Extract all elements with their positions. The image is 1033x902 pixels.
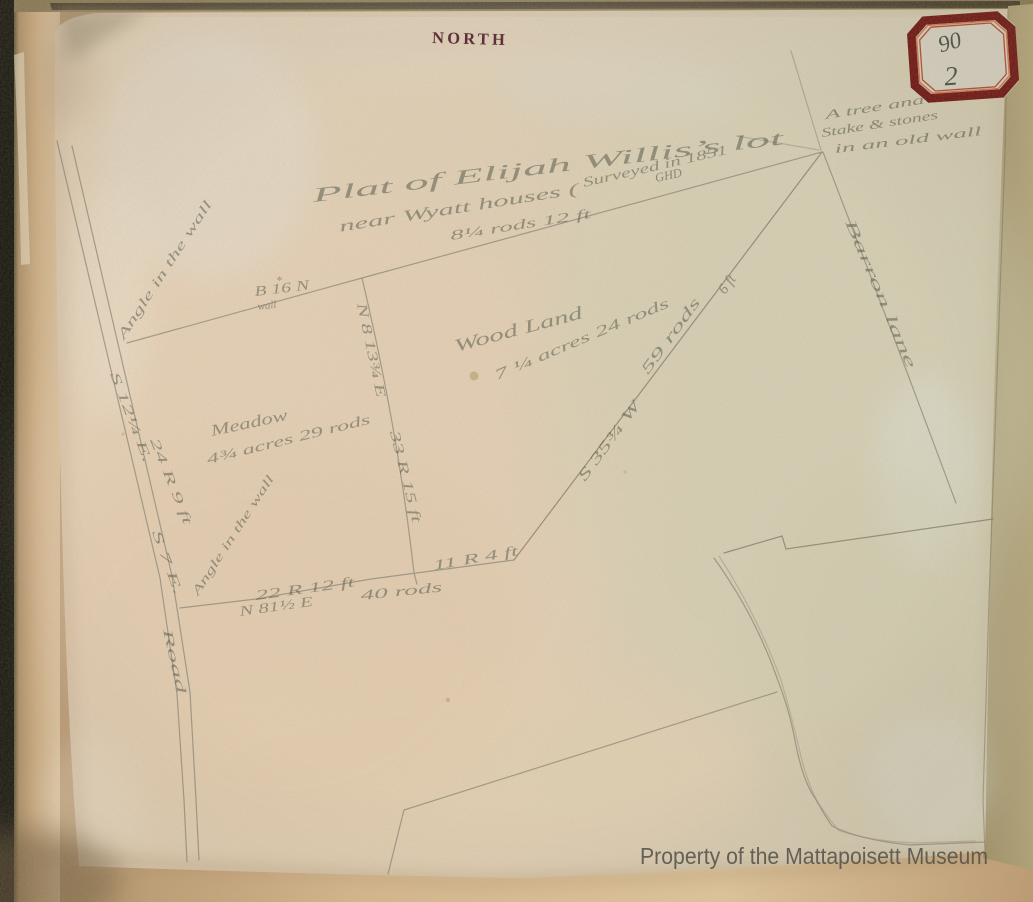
svg-text:Property of the Mattapoisett M: Property of the Mattapoisett Museum: [640, 843, 988, 869]
